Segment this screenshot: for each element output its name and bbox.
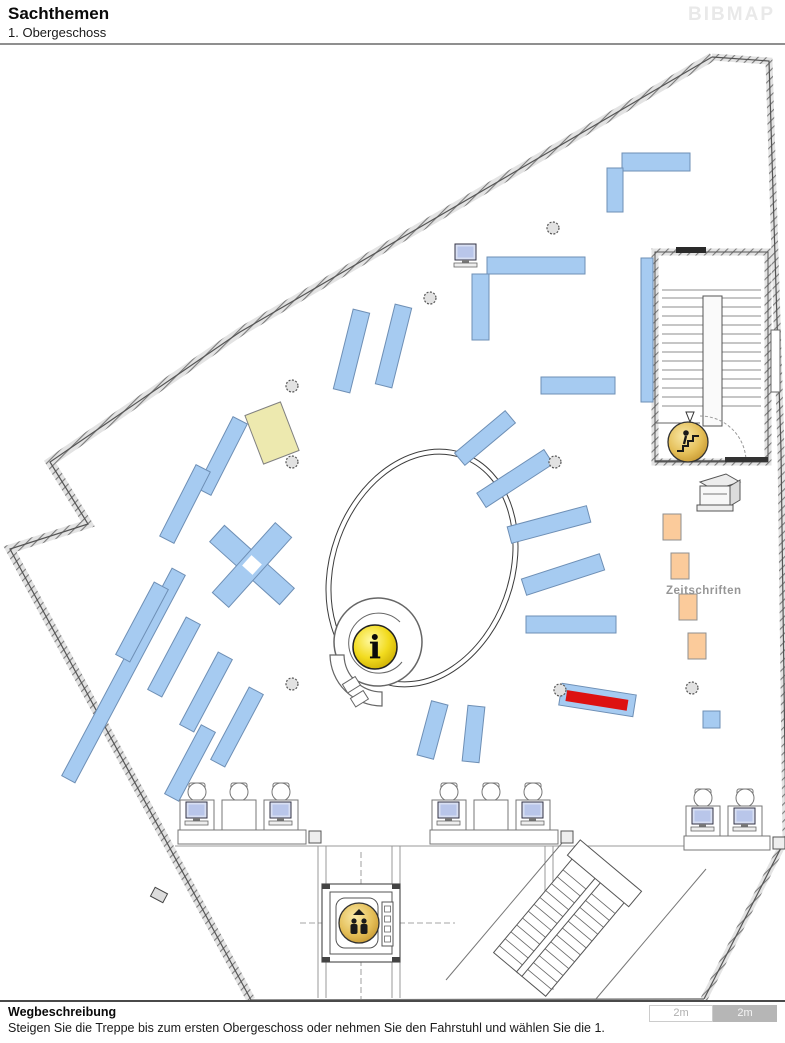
column xyxy=(424,292,436,304)
footer: Wegbeschreibung Steigen Sie die Treppe b… xyxy=(0,1000,785,1043)
bin xyxy=(773,837,785,849)
directions-heading: Wegbeschreibung xyxy=(8,1005,116,1019)
scale-segment-dark: 2m xyxy=(713,1005,777,1022)
column xyxy=(286,380,298,392)
column xyxy=(547,222,559,234)
shelf xyxy=(211,687,264,767)
shelf xyxy=(333,309,369,393)
shelf xyxy=(455,411,516,466)
magazine-shelf xyxy=(671,553,689,579)
page-title: Sachthemen xyxy=(8,4,109,24)
column xyxy=(286,456,298,468)
computer-icon xyxy=(437,802,460,825)
computer-icon xyxy=(269,802,292,825)
computer-icon xyxy=(733,808,756,831)
directions-text: Steigen Sie die Treppe bis zum ersten Ob… xyxy=(8,1021,648,1035)
desk-group xyxy=(684,789,785,850)
computer-icon xyxy=(454,244,477,267)
bin xyxy=(309,831,321,843)
shelf xyxy=(703,711,720,728)
shelf xyxy=(507,506,591,544)
floor-label: 1. Obergeschoss xyxy=(8,25,106,40)
lower-staircase xyxy=(489,840,642,1000)
column xyxy=(554,684,566,696)
highlighted-shelf xyxy=(559,683,637,716)
cross-shelf xyxy=(186,499,319,632)
column xyxy=(286,678,298,690)
shelf xyxy=(487,257,585,274)
area-label: Zeitschriften xyxy=(666,585,742,597)
floor-lines xyxy=(175,843,770,1006)
floor-plan: Zeitschriften i xyxy=(0,0,785,1043)
stairs-up-icon xyxy=(668,422,708,462)
header: Sachthemen 1. Obergeschoss BIBMAP xyxy=(0,0,785,45)
shelf xyxy=(160,465,211,544)
svg-text:i: i xyxy=(369,628,381,666)
magazine-shelf xyxy=(679,594,697,620)
desk xyxy=(474,800,508,830)
map-scale: 2m 2m xyxy=(649,1005,777,1022)
bibmap-page: Zeitschriften i Sachthemen 1. Obergescho… xyxy=(0,0,785,1043)
copier xyxy=(697,474,740,511)
desk-group xyxy=(430,783,573,844)
shelf xyxy=(526,616,616,633)
shelf xyxy=(477,450,553,508)
chair xyxy=(736,789,754,807)
magazine-shelf xyxy=(688,633,706,659)
shelf xyxy=(417,701,448,759)
chair xyxy=(230,783,248,801)
scale-segment-light: 2m xyxy=(649,1005,713,1022)
shelf xyxy=(472,274,489,340)
shelf xyxy=(607,168,623,212)
shelf xyxy=(641,258,653,402)
chair xyxy=(482,783,500,801)
bin xyxy=(561,831,573,843)
shelf xyxy=(375,304,411,388)
desk-group xyxy=(178,783,321,844)
computer-icon xyxy=(185,802,208,825)
shelf xyxy=(622,153,690,171)
desk xyxy=(222,800,256,830)
elevator-icon xyxy=(339,903,379,943)
special-shelf xyxy=(245,402,299,464)
chair xyxy=(524,783,542,801)
column xyxy=(549,456,561,468)
magazine-shelf xyxy=(663,514,681,540)
chair xyxy=(188,783,206,801)
computer-icon xyxy=(521,802,544,825)
shelf xyxy=(521,554,604,596)
computer-icon xyxy=(691,808,714,831)
info-icon: i xyxy=(353,625,397,669)
shelf xyxy=(541,377,615,394)
column xyxy=(686,682,698,694)
shelf xyxy=(180,652,233,732)
chair xyxy=(272,783,290,801)
chair xyxy=(440,783,458,801)
shelf xyxy=(462,705,485,762)
chair xyxy=(694,789,712,807)
bibmap-logo: BIBMAP xyxy=(688,4,775,26)
